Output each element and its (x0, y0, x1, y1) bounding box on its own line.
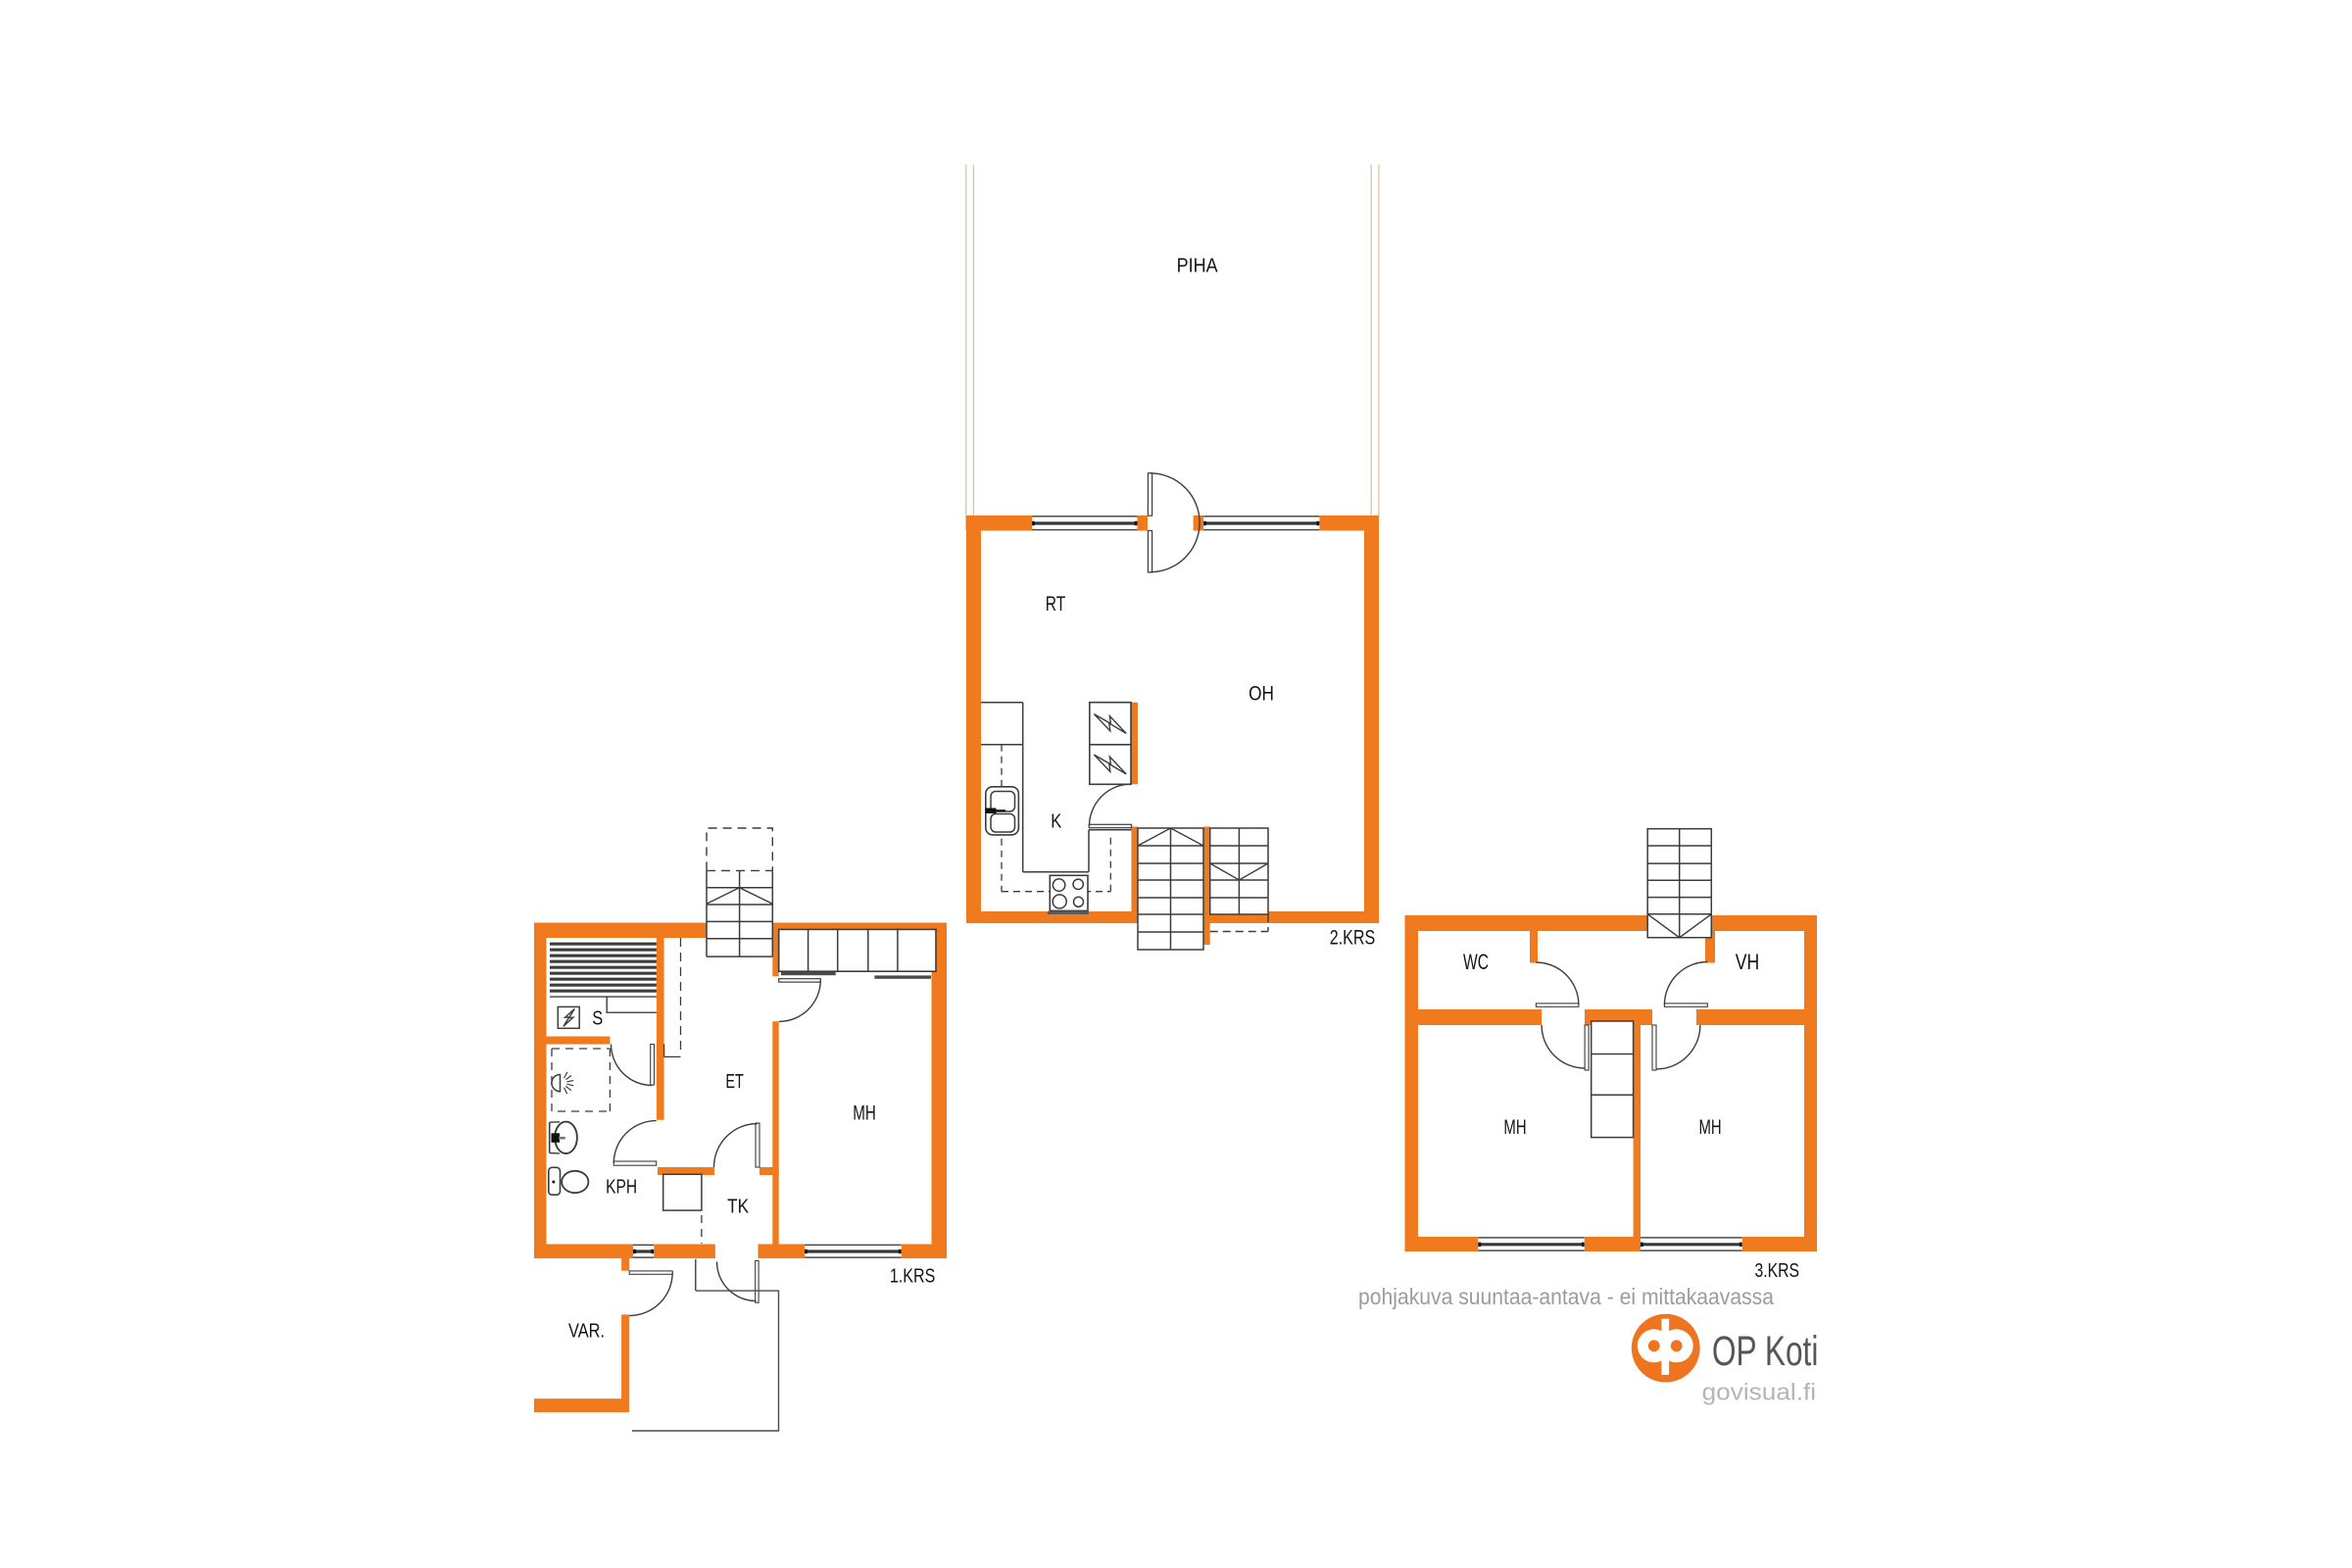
svg-text:govisual.fi: govisual.fi (1702, 1380, 1817, 1406)
svg-text:OP Koti: OP Koti (1712, 1328, 1819, 1375)
svg-text:MH: MH (1503, 1115, 1526, 1139)
svg-text:ET: ET (725, 1071, 744, 1093)
svg-text:TK: TK (727, 1197, 750, 1218)
svg-text:VH: VH (1736, 950, 1760, 974)
svg-text:MH: MH (853, 1101, 876, 1124)
svg-text:PIHA: PIHA (1177, 255, 1218, 277)
svg-text:RT: RT (1046, 593, 1066, 615)
svg-text:OH: OH (1249, 682, 1274, 705)
svg-text:pohjakuva suuntaa-antava - ei: pohjakuva suuntaa-antava - ei mittakaava… (1358, 1284, 1775, 1309)
svg-text:MH: MH (1699, 1115, 1722, 1139)
svg-text:S: S (592, 1008, 603, 1030)
svg-text:VAR.: VAR. (568, 1321, 605, 1343)
svg-text:2.KRS: 2.KRS (1330, 926, 1376, 949)
svg-text:1.KRS: 1.KRS (890, 1266, 936, 1288)
svg-text:3.KRS: 3.KRS (1754, 1259, 1799, 1282)
svg-text:KPH: KPH (606, 1176, 637, 1198)
svg-text:K: K (1051, 810, 1061, 833)
svg-text:WC: WC (1463, 950, 1489, 974)
